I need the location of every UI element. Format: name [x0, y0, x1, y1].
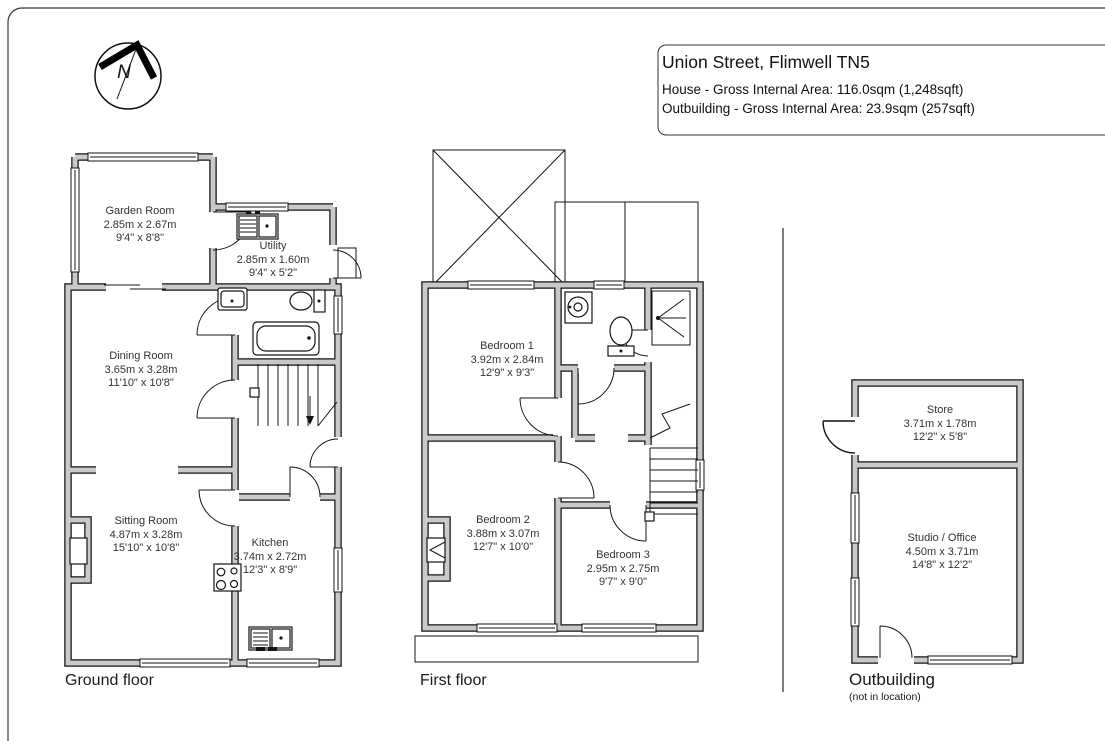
outbuilding-area-text: Outbuilding - Gross Internal Area: 23.9s…	[662, 101, 975, 116]
fireplace	[70, 538, 87, 564]
room-label-bedroom-1: Bedroom 1 3.92m x 2.84m 12'9" x 9'3"	[471, 340, 544, 381]
toilet	[290, 290, 325, 312]
ground-floor-caption: Ground floor	[65, 672, 154, 690]
page-title: Union Street, Flimwell TN5	[662, 52, 870, 73]
room-label-kitchen: Kitchen 3.74m x 2.72m 12'3" x 8'9"	[234, 537, 307, 578]
room-label-garden-room: Garden Room 2.85m x 2.67m 9'4" x 8'8"	[104, 205, 177, 246]
room-label-store: Store 3.71m x 1.78m 12'2" x 5'8"	[904, 404, 977, 445]
bedroom2-fireplace	[427, 538, 445, 562]
house-area-text: House - Gross Internal Area: 116.0sqm (1…	[662, 82, 963, 97]
outbuilding-doors	[823, 421, 912, 658]
bathtub	[253, 322, 319, 355]
ensuite-toilet	[608, 317, 634, 356]
utility-step	[338, 248, 356, 278]
first-floor-plan	[415, 150, 704, 662]
first-floor-stairs	[645, 404, 698, 521]
outbuilding-note: (not in location)	[849, 691, 921, 703]
utility-appliances	[237, 211, 278, 239]
room-label-bedroom-2: Bedroom 2 3.88m x 3.07m 12'7" x 10'0"	[467, 514, 540, 555]
ground-floor-stairs	[250, 364, 337, 426]
ensuite-sink	[565, 292, 592, 323]
kitchen-sink	[249, 627, 292, 651]
room-label-utility: Utility 2.85m x 1.60m 9'4" x 5'2"	[237, 240, 310, 281]
outbuilding-windows	[851, 493, 1012, 664]
first-floor-caption: First floor	[420, 672, 487, 690]
room-label-studio-office: Studio / Office 4.50m x 3.71m 14'8" x 12…	[906, 532, 979, 573]
room-label-bedroom-3: Bedroom 3 2.95m x 2.75m 9'7" x 9'0"	[587, 549, 660, 590]
shower	[652, 291, 690, 345]
floorplan-page: N Union Street, Flimwell TN5 House - Gro…	[0, 0, 1105, 741]
room-label-dining-room: Dining Room 3.65m x 3.28m 11'10" x 10'8"	[105, 350, 178, 391]
room-label-sitting-room: Sitting Room 4.87m x 3.28m 15'10" x 10'8…	[110, 515, 183, 556]
outbuilding-caption: Outbuilding	[849, 670, 935, 690]
compass-north-letter: N	[112, 62, 136, 84]
bathroom-sink	[218, 288, 247, 310]
